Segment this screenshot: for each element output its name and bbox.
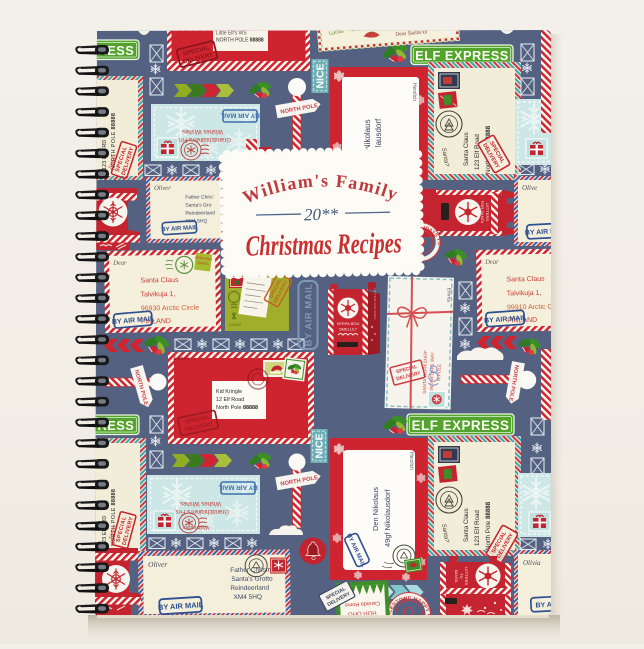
svg-text:ELF EXPRESS: ELF EXPRESS [415, 48, 509, 63]
svg-text:20**: 20** [304, 205, 339, 225]
svg-text:North Pole 88888: North Pole 88888 [216, 405, 258, 411]
svg-text:SANTA: SANTA [454, 569, 459, 582]
svg-text:LETTERS FOR SANTA: LETTERS FOR SANTA [373, 288, 377, 319]
svg-text:123 ELF RD: 123 ELF RD [102, 516, 108, 546]
svg-text:Santa's Gro: Santa's Gro [185, 202, 212, 208]
svg-text:Father Chris’: Father Chris’ [185, 194, 214, 200]
svg-text:Christmas Recipes: Christmas Recipes [245, 227, 402, 262]
svg-text:Wishes Wishes: Wishes Wishes [180, 500, 221, 506]
svg-text:Grandchildren's First: Grandchildren's First [176, 136, 231, 142]
svg-text:Olive: Olive [522, 184, 537, 192]
svg-text:Talvikuja 1,: Talvikuja 1, [141, 291, 176, 298]
svg-text:FOR SANTA: FOR SANTA [480, 201, 485, 224]
svg-text:Santa Claus: Santa Claus [506, 276, 545, 284]
svg-text:Reindeerland: Reindeerland [230, 585, 269, 592]
svg-text:BY AIR MAIL: BY AIR MAIL [220, 111, 259, 118]
svg-text:Herzlich: Herzlich [411, 83, 417, 101]
svg-text:Santa's: Santa's [173, 356, 190, 362]
svg-text:ELF EXPRESS: ELF EXPRESS [412, 418, 510, 433]
svg-text:Oliver: Oliver [154, 185, 171, 192]
svg-text:Emma: Emma [445, 288, 451, 303]
svg-text:Santa Claus: Santa Claus [140, 277, 179, 285]
svg-text:Little Elf's WS: Little Elf's WS [216, 31, 247, 37]
svg-text:12 Elf Road: 12 Elf Road [216, 397, 244, 403]
svg-text:BY AIR MAIL: BY AIR MAIL [304, 283, 315, 346]
svg-text:Wishes Wishes: Wishes Wishes [182, 128, 223, 134]
svg-text:Lucas: Lucas [229, 322, 242, 327]
svg-text:Weihnachts: Weihnachts [182, 524, 209, 530]
svg-text:Herzlich: Herzlich [408, 452, 414, 470]
svg-text:XM4 5HQ: XM4 5HQ [233, 594, 262, 601]
svg-text:Den Nikolaus: Den Nikolaus [371, 487, 380, 531]
svg-text:VERPA BOU: VERPA BOU [337, 321, 360, 326]
svg-text:123 Elf Road: 123 Elf Road [474, 510, 481, 546]
svg-text:Dear: Dear [484, 259, 499, 266]
svg-text:Reindeerland: Reindeerland [185, 210, 215, 216]
svg-text:Oliver: Oliver [148, 560, 167, 569]
svg-text:N.POLE: N.POLE [436, 364, 441, 381]
svg-text:Talvikuja 1,: Talvikuja 1, [507, 290, 542, 298]
svg-text:123 Elf Road: 123 Elf Road [474, 134, 481, 170]
svg-text:North Pole 88888: North Pole 88888 [485, 501, 492, 550]
svg-text:Santa Claus: Santa Claus [463, 132, 470, 166]
svg-text:Santa Claus: Santa Claus [463, 508, 470, 542]
svg-text:Grandchildren's First: Grandchildren's First [174, 508, 229, 514]
svg-text:SMELLE?: SMELLE? [339, 327, 358, 332]
svg-text:Kid Kringle: Kid Kringle [216, 389, 242, 395]
svg-text:Santa's Grotto: Santa's Grotto [231, 576, 273, 583]
svg-text:49gf Nikolausdorf: 49gf Nikolausdorf [383, 489, 392, 547]
svg-text:Olivia: Olivia [523, 559, 541, 567]
svg-text:Dear: Dear [112, 260, 127, 267]
svg-text:BY AIR MAIL: BY AIR MAIL [218, 483, 257, 490]
svg-text:NORTH POLE 88888: NORTH POLE 88888 [216, 38, 264, 44]
